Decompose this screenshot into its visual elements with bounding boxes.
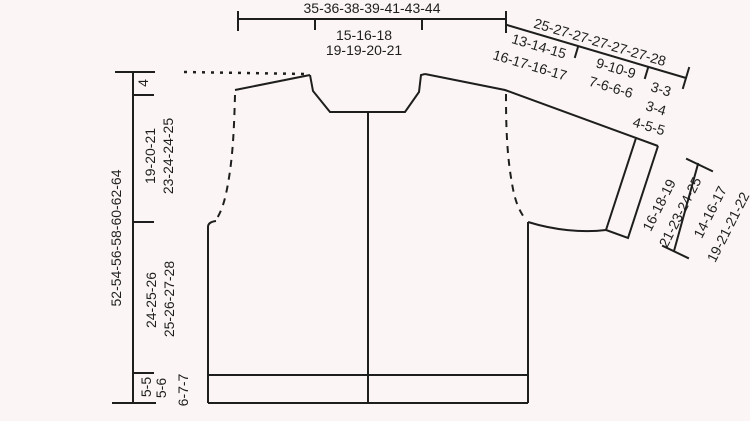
shoulder-drop-label: 4 [135,79,151,87]
bottom-rib-label-3: 6-7-7 [175,373,191,406]
right-armhole-dashed-line [506,94,526,220]
bottom-rib-label-2: 5-6 [153,378,169,398]
left-armhole-dashed-line [216,95,235,220]
body-length-label-2: 25-26-27-28 [161,261,177,337]
neck-width-label-1: 15-16-18 [336,27,392,43]
total-length-label: 52-54-56-58-60-62-64 [108,169,124,306]
garment-schematic: 35-36-38-39-41-43-44 15-16-18 19-19-20-2… [0,0,750,421]
sleeve-underarm-line [528,222,606,231]
sleeve-end-label-2: 3-4 [644,97,668,118]
armhole-depth-label-2: 23-24-24-25 [160,118,176,194]
body-length-label-1: 24-25-26 [143,272,159,328]
bottom-rib-label-1: 5-5 [138,377,154,397]
schematic-canvas: 35-36-38-39-41-43-44 15-16-18 19-19-20-2… [0,0,750,421]
left-shoulder-line [235,75,310,90]
top-width-label: 35-36-38-39-41-43-44 [304,0,441,16]
back-neck-dotted-line [184,72,306,74]
neckline [310,74,425,112]
sleeve-end-label-1: 3-3 [649,78,673,99]
armhole-depth-label-1: 19-20-21 [142,128,158,184]
neck-width-label-2: 19-19-20-21 [326,42,402,58]
